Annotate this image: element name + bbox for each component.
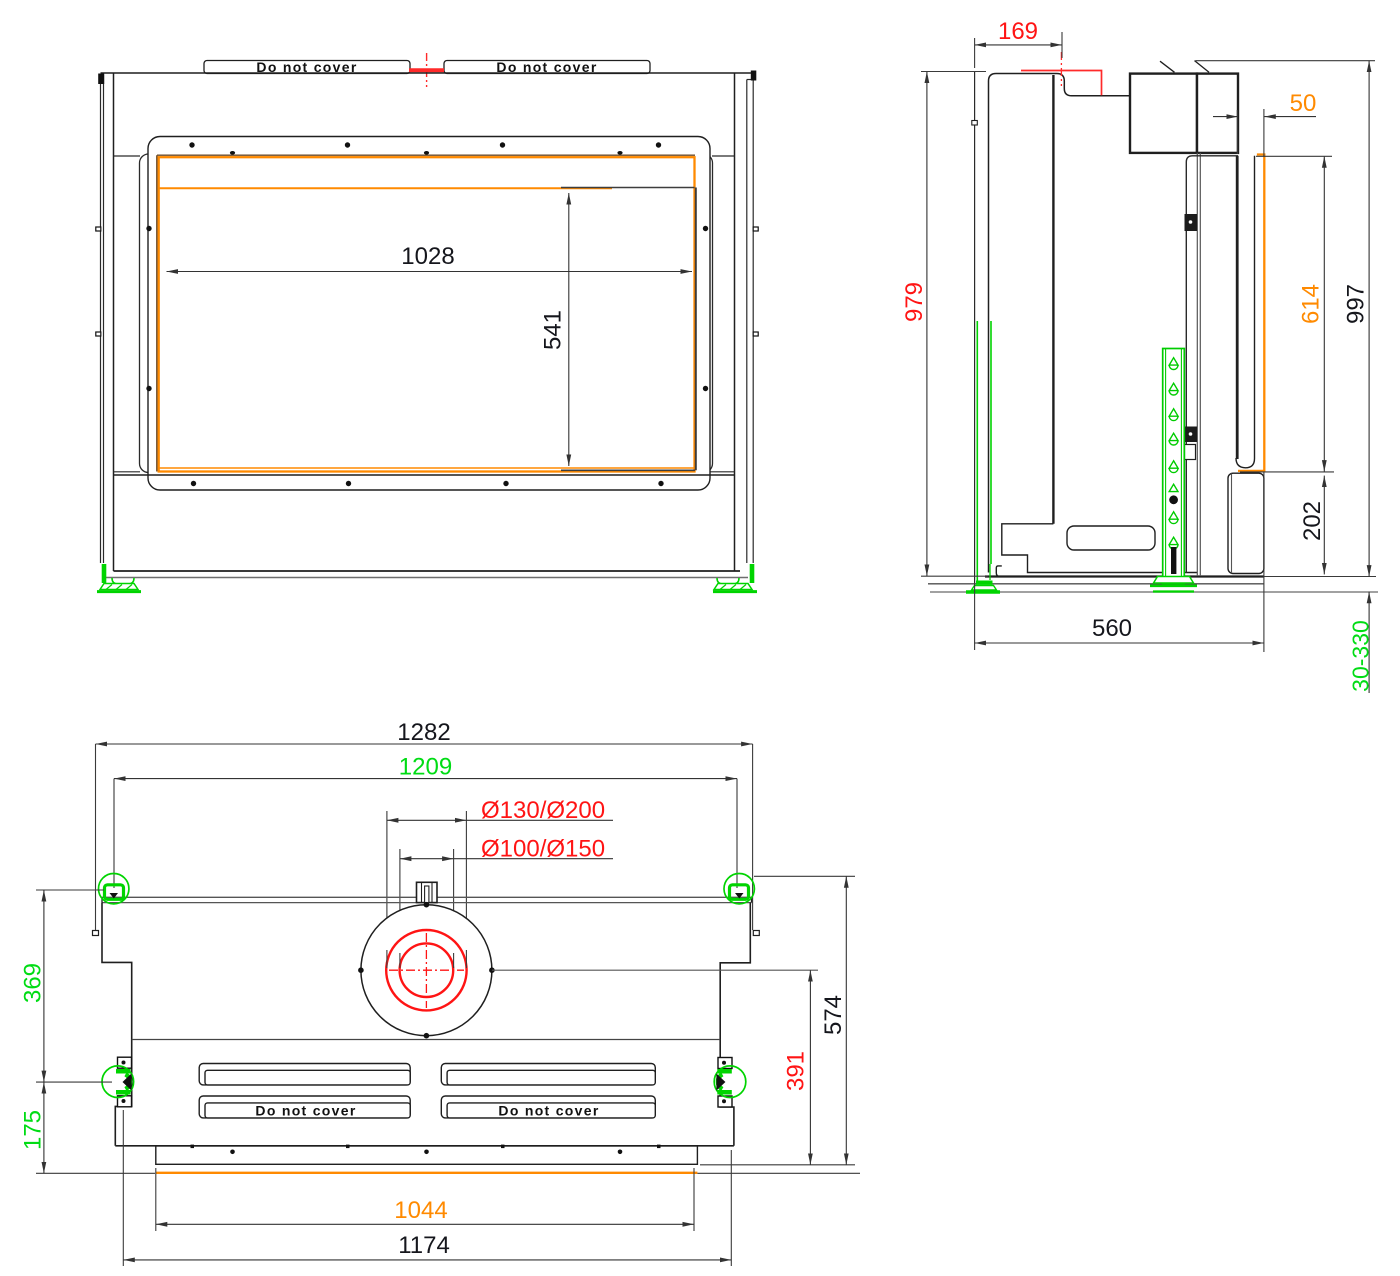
svg-text:1174: 1174	[398, 1232, 450, 1259]
svg-text:Ø130/Ø200: Ø130/Ø200	[481, 797, 605, 824]
svg-text:574: 574	[820, 995, 847, 1035]
svg-text:1028: 1028	[401, 243, 454, 270]
svg-text:1209: 1209	[399, 754, 452, 781]
svg-text:30-330: 30-330	[1348, 620, 1374, 692]
svg-text:614: 614	[1297, 284, 1324, 324]
svg-text:202: 202	[1299, 501, 1326, 541]
svg-text:1044: 1044	[394, 1197, 447, 1224]
svg-text:175: 175	[19, 1110, 46, 1150]
svg-text:541: 541	[539, 310, 566, 350]
svg-text:391: 391	[782, 1051, 809, 1091]
svg-text:997: 997	[1342, 284, 1369, 324]
svg-text:Do not cover: Do not cover	[255, 1103, 356, 1119]
svg-text:560: 560	[1092, 615, 1132, 642]
svg-text:1282: 1282	[397, 719, 450, 746]
svg-text:369: 369	[19, 963, 46, 1003]
svg-text:50: 50	[1290, 90, 1317, 117]
svg-text:169: 169	[998, 18, 1038, 45]
svg-text:Do not cover: Do not cover	[498, 1103, 599, 1119]
svg-text:979: 979	[901, 282, 928, 322]
svg-text:Ø100/Ø150: Ø100/Ø150	[481, 836, 605, 863]
